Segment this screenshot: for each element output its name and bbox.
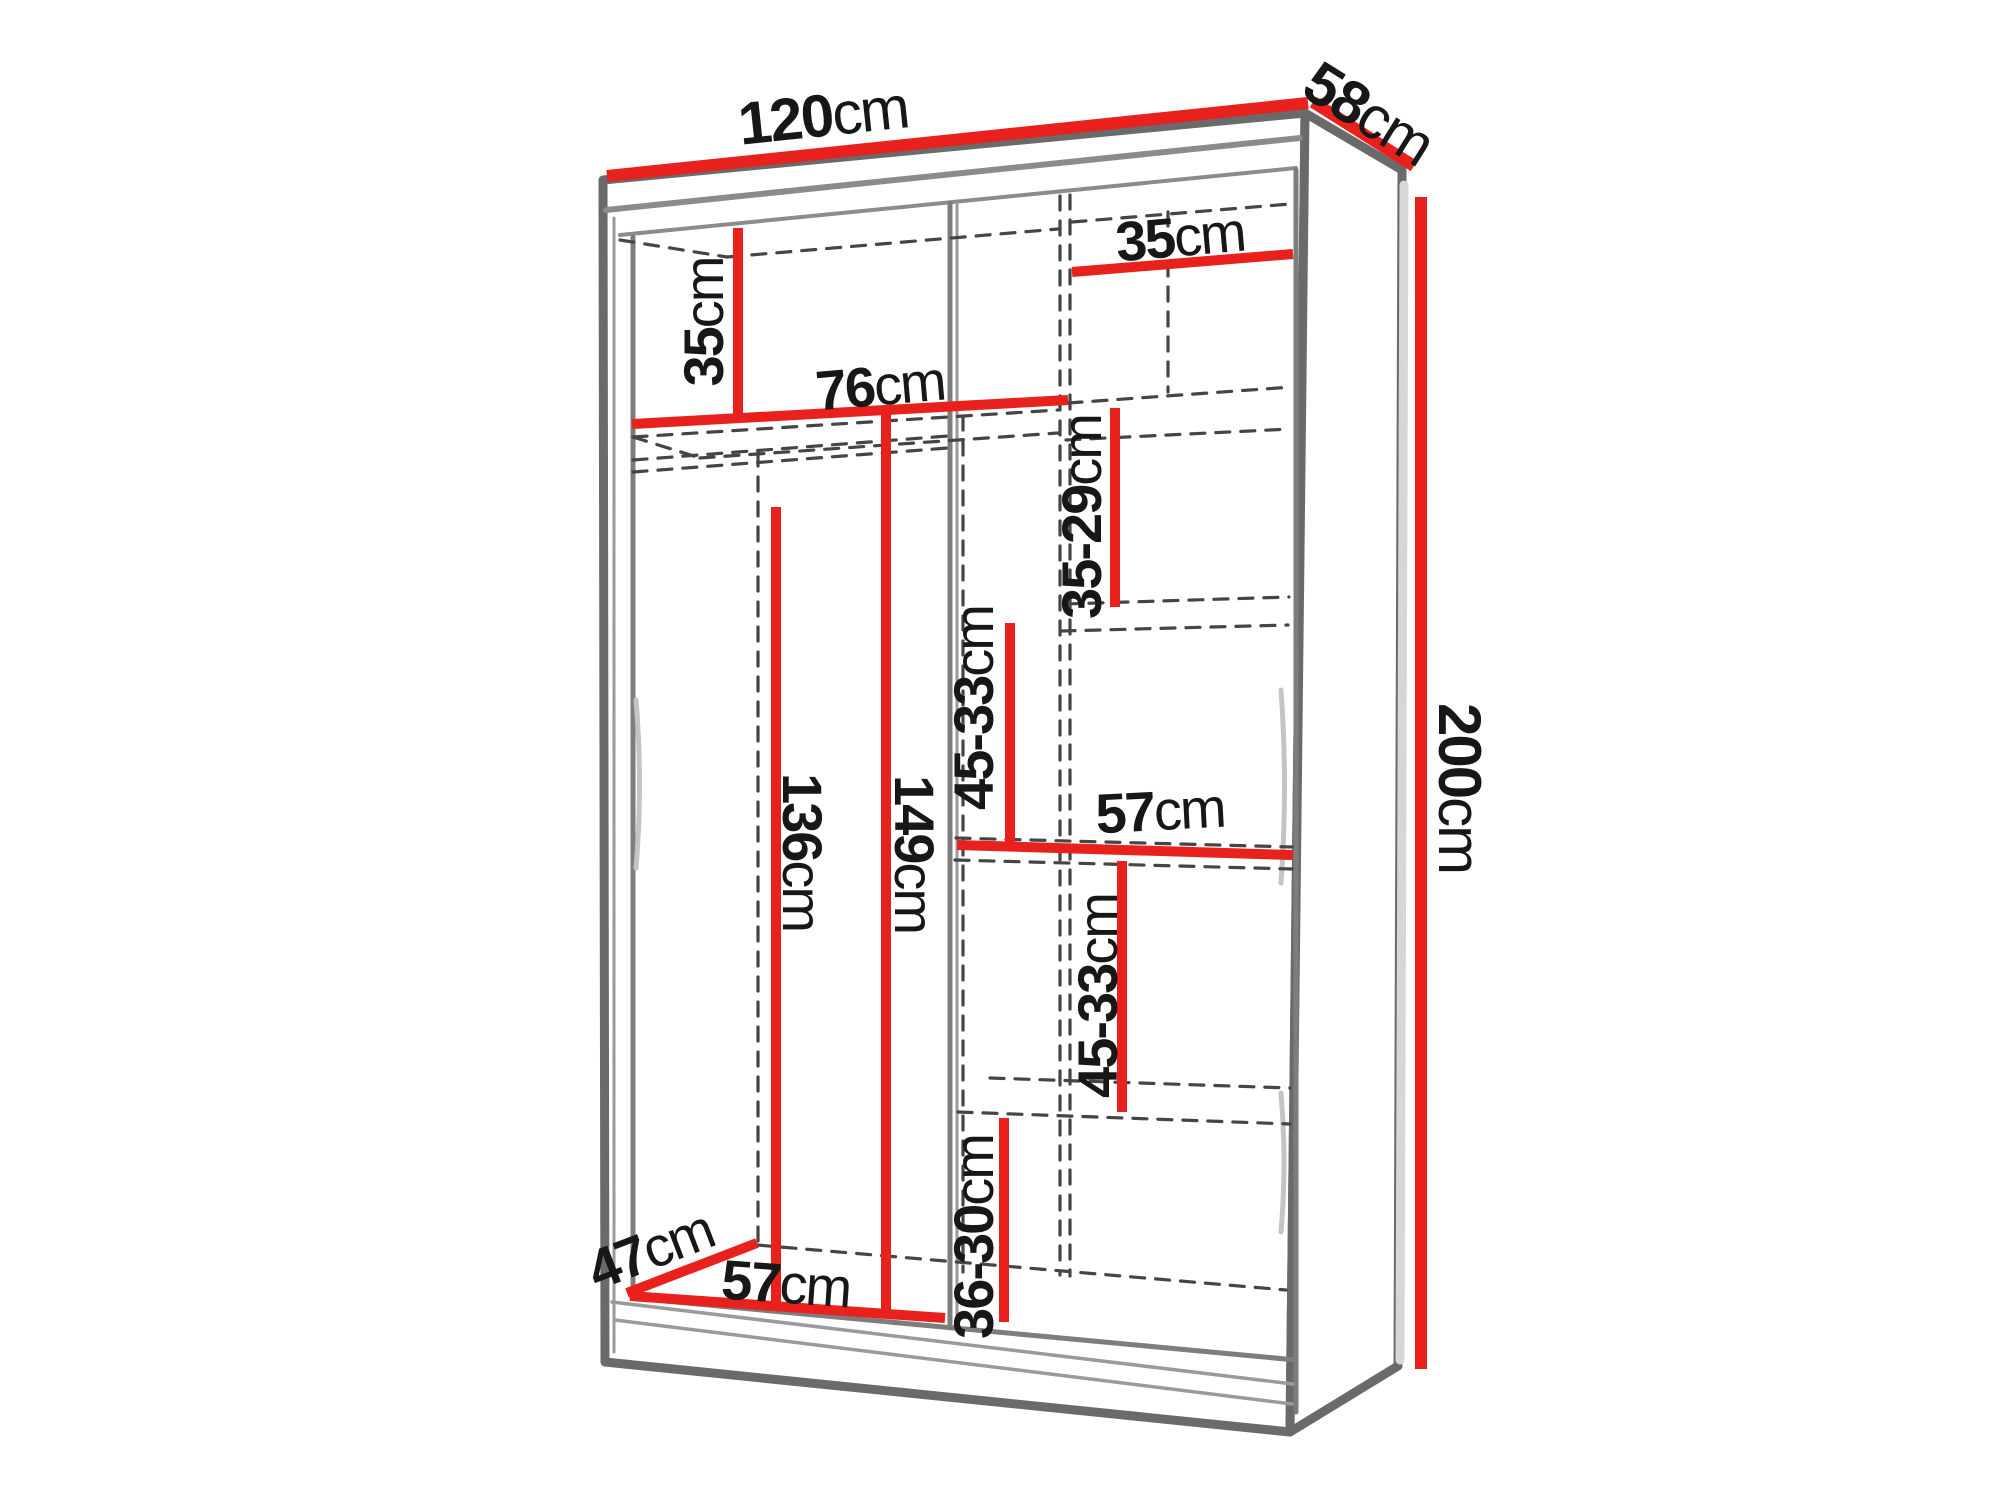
diagram-svg: 120cm58cm200cm35cm76cm35cm35-29cm45-33cm… [0, 0, 2000, 1500]
dimension-label-rail-height-149: 149cm [884, 775, 947, 933]
side-panel-shading [1400, 185, 1404, 1360]
dimension-label-floor-width-57: 57cm [719, 1247, 852, 1319]
dimension-label-top-left-compartment: 35cm [672, 258, 735, 387]
side-panel [1290, 113, 1402, 1432]
dimension-label-shelf-gap-35-29: 35-29cm [1050, 415, 1113, 619]
dimension-label-height-right: 200cm [1427, 703, 1494, 873]
dimension-label-shelf-gap-45-33-lower: 45-33cm [1066, 894, 1129, 1098]
dimension-label-left-section-width: 76cm [813, 348, 947, 422]
page: { "diagram": { "type": "wardrobe-dimensi… [0, 0, 2000, 1500]
dimension-label-rod-height-136: 136cm [772, 773, 835, 931]
dimension-label-right-column-width: 35cm [1113, 199, 1247, 273]
dimension-label-shelf-width-57-mid: 57cm [1094, 775, 1226, 845]
wardrobe-dimension-diagram: 120cm58cm200cm35cm76cm35cm35-29cm45-33cm… [0, 0, 2000, 1500]
dimension-label-shelf-gap-36-30: 36-30cm [942, 1135, 1005, 1339]
dimension-label-shelf-gap-45-33-upper: 45-33cm [942, 606, 1005, 810]
